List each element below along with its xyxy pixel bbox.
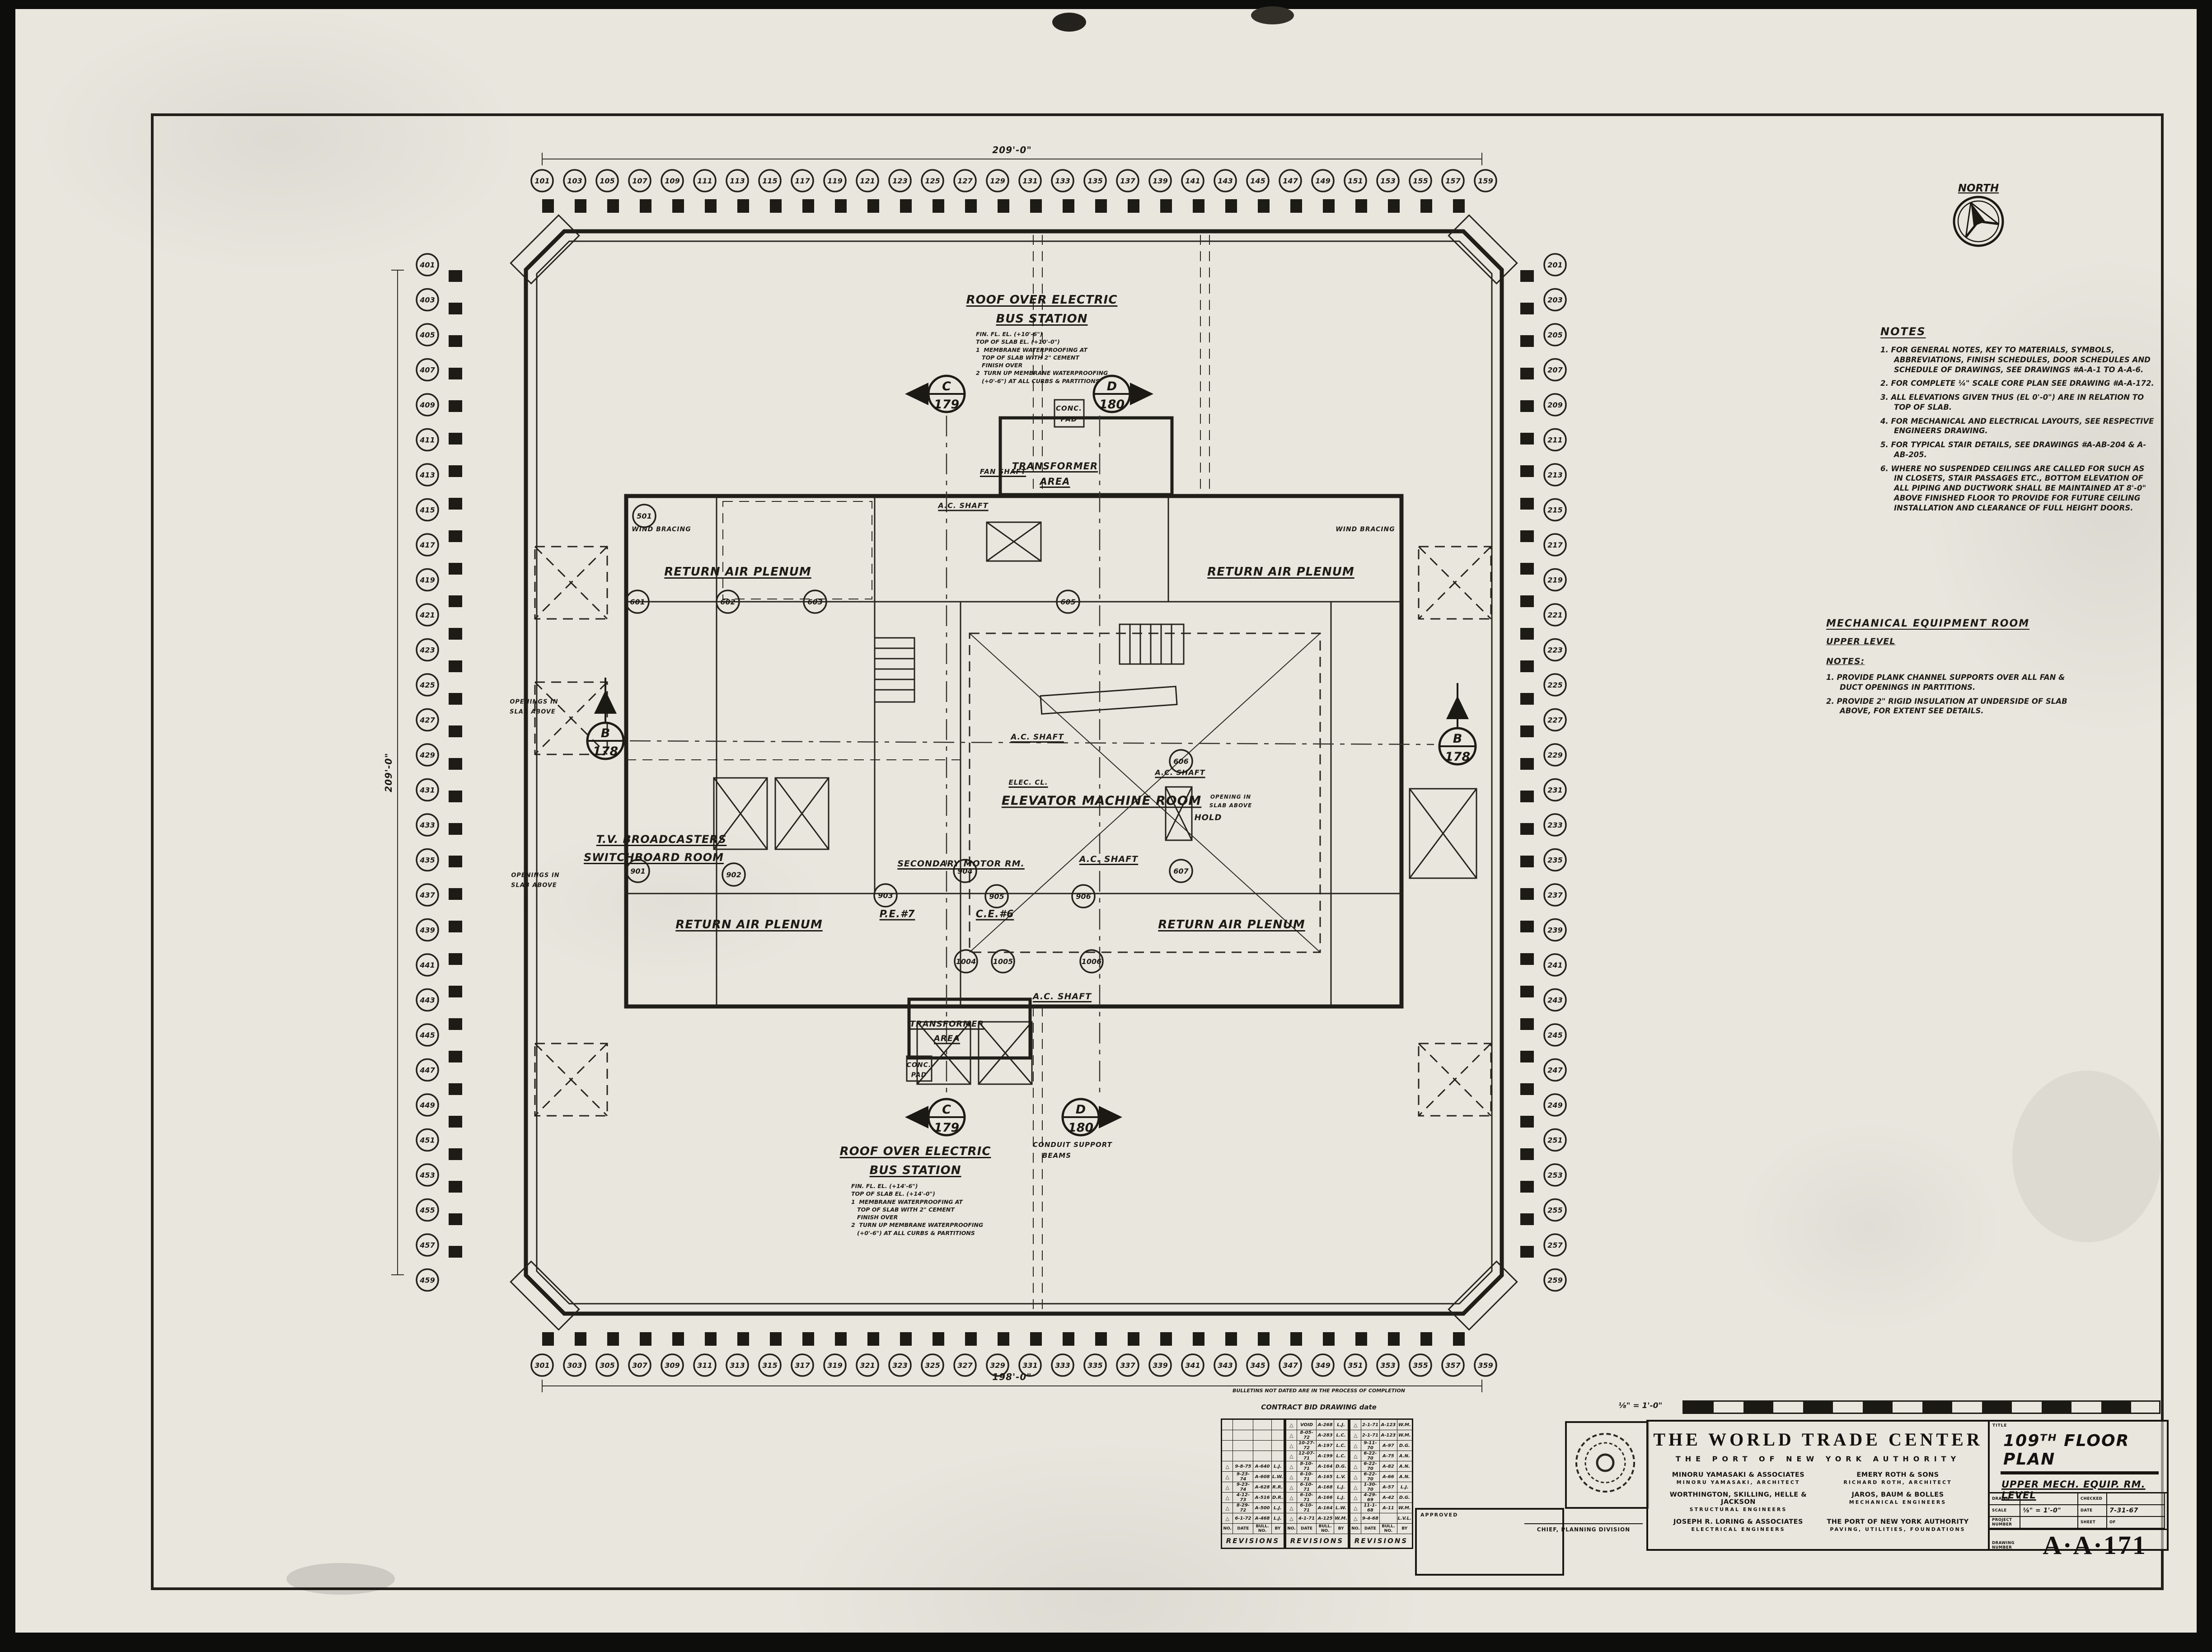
roof-notes-top: FIN. FL. EL. (+10'-6")TOP OF SLAB EL. (+… [976,331,1166,385]
svg-text:113: 113 [730,177,745,185]
svg-text:223: 223 [1547,646,1562,655]
revisions-table-3: △2-1-71A-123W.M.△2-1-71A-123W.M.△9-11-70… [1349,1418,1413,1549]
svg-text:305: 305 [600,1361,614,1370]
svg-text:257: 257 [1547,1241,1563,1250]
section-cut-lines [630,416,1434,1093]
firm-list: MINORU YAMASAKI & ASSOCIATESMINORU YAMAS… [1661,1471,1975,1532]
svg-text:105: 105 [600,177,614,185]
north-arrow-icon: NORTH [1954,183,2003,246]
svg-text:251: 251 [1547,1136,1562,1145]
svg-text:241: 241 [1547,961,1562,969]
svg-text:335: 335 [1087,1361,1102,1370]
svg-text:129: 129 [990,177,1005,185]
dimension-face-width: 209'-0" [992,145,1032,155]
svg-text:243: 243 [1547,996,1562,1005]
bulletins-note: BULLETINS NOT DATED ARE IN THE PROCESS O… [1222,1388,1416,1394]
label-roof-over-electric: ROOF OVER ELECTRIC [966,293,1118,307]
svg-text:203: 203 [1547,296,1562,304]
svg-text:101: 101 [534,177,549,185]
roof-notes-bottom: FIN. FL. EL. (+14'-6")TOP OF SLAB EL. (+… [851,1183,1041,1237]
scale-value: ⅛" = 1'-0" [2020,1505,2078,1517]
section-number: 179 [934,398,959,412]
svg-text:443: 443 [419,996,435,1005]
svg-text:145: 145 [1250,177,1265,185]
svg-text:605: 605 [1060,598,1075,606]
title-block-firms: THE WORLD TRADE CENTER THE PORT OF NEW Y… [1648,1422,1990,1549]
svg-text:343: 343 [1218,1361,1233,1370]
label-conduit-support-beams: CONDUIT SUPPORT [1033,1141,1112,1149]
drawing-number-label: DRAWING NUMBER [1990,1541,2023,1550]
revisions-table-1: △9-8-75A-640L.J.△9-23-74A-608L.W.△9-23-7… [1221,1418,1285,1549]
sheet-label: SHEET [2078,1517,2107,1529]
svg-text:449: 449 [419,1101,435,1109]
room-label-ac-shaft: A.C. SHAFT [1155,768,1205,777]
svg-text:459: 459 [419,1276,435,1285]
svg-text:123: 123 [892,177,907,185]
svg-text:231: 231 [1547,786,1562,795]
svg-text:147: 147 [1283,177,1298,185]
section-letter: D [1076,1103,1086,1117]
svg-text:457: 457 [419,1241,435,1250]
room-label-elec-cl: ELEC. CL. [1008,778,1048,786]
section-number: 180 [1068,1121,1093,1135]
contract-bid-note: CONTRACT BID DRAWING date [1222,1403,1416,1411]
north-label: NORTH [1958,183,1999,194]
svg-text:229: 229 [1547,751,1562,759]
svg-text:353: 353 [1380,1361,1395,1370]
room-label-elevator-machine-room: ELEVATOR MACHINE ROOM [1002,793,1201,808]
room-label-return-air-plenum: RETURN AIR PLENUM [664,565,811,579]
label-conduit-support-beams: BEAMS [1042,1151,1071,1160]
notes-list: 1. FOR GENERAL NOTES, KEY TO MATERIALS, … [1880,345,2156,513]
svg-text:319: 319 [827,1361,842,1370]
svg-text:213: 213 [1547,471,1562,479]
label-conc-pad: CONC. [907,1062,932,1069]
room-label-ac-shaft: A.C. SHAFT [1011,733,1064,742]
svg-text:906: 906 [1076,892,1091,901]
svg-text:407: 407 [419,366,435,374]
room-label-ac-shaft: A.C. SHAFT [938,501,988,510]
svg-text:127: 127 [957,177,973,185]
svg-text:153: 153 [1380,177,1395,185]
svg-text:311: 311 [697,1361,712,1370]
svg-text:435: 435 [419,856,435,865]
svg-text:115: 115 [762,177,777,185]
svg-text:415: 415 [419,506,435,515]
mer-subtitle: UPPER LEVEL [1826,636,2088,646]
approved-label: APPROVED [1417,1510,1562,1520]
svg-text:237: 237 [1547,891,1563,899]
room-label-transformer-area: AREA [934,1034,960,1044]
room-label-return-air-plenum: RETURN AIR PLENUM [1207,565,1354,579]
svg-text:1006: 1006 [1082,957,1102,966]
svg-text:341: 341 [1185,1361,1200,1370]
section-number: 178 [1445,750,1470,764]
svg-text:441: 441 [419,961,435,969]
svg-text:259: 259 [1547,1276,1562,1285]
stair-icons [875,624,1184,702]
svg-text:419: 419 [419,576,435,585]
dimension-face-height: 209'-0" [383,753,394,792]
svg-text:417: 417 [419,541,435,549]
svg-text:225: 225 [1547,681,1562,689]
label-openings-in-slab: OPENINGS IN [510,699,558,706]
label-roof-over-electric: ROOF OVER ELECTRIC [840,1145,991,1158]
drawing-title-line1: 109ᵀᴴ FLOOR PLAN [2003,1432,2160,1469]
project-number-label: PROJECT NUMBER [1990,1517,2020,1529]
svg-text:405: 405 [419,331,435,339]
date-value: 7-31-67 [2107,1505,2165,1517]
section-number: 178 [593,744,618,758]
svg-text:607: 607 [1173,867,1189,875]
label-hold: HOLD [1195,813,1222,823]
section-letter: C [942,1103,951,1117]
svg-text:345: 345 [1250,1361,1265,1370]
mer-notes-block: MECHANICAL EQUIPMENT ROOM UPPER LEVEL NO… [1826,618,2088,720]
graphic-scale-bar [1682,1400,2160,1414]
svg-text:227: 227 [1547,716,1563,725]
svg-text:135: 135 [1087,177,1102,185]
svg-text:309: 309 [665,1361,680,1370]
room-label-pe7: P.E.#7 [880,909,915,920]
svg-text:111: 111 [697,177,712,185]
section-number: 179 [934,1121,959,1135]
svg-text:205: 205 [1547,331,1562,339]
section-letter: B [601,726,610,740]
svg-text:235: 235 [1547,856,1562,865]
owner-title: THE PORT OF NEW YORK AUTHORITY [1648,1455,1988,1463]
svg-text:903: 903 [878,891,893,900]
label-bus-station: BUS STATION [996,312,1087,326]
svg-text:327: 327 [957,1361,973,1370]
svg-text:207: 207 [1547,366,1563,374]
svg-text:451: 451 [419,1136,435,1145]
svg-text:401: 401 [419,261,435,269]
rev-col-no: NO. [1222,1524,1233,1534]
mer-notes-list: 1. PROVIDE PLANK CHANNEL SUPPORTS OVER A… [1826,673,2088,716]
svg-text:429: 429 [419,751,435,759]
svg-text:323: 323 [892,1361,907,1370]
svg-text:337: 337 [1120,1361,1135,1370]
svg-text:333: 333 [1055,1361,1070,1370]
svg-text:209: 209 [1547,401,1562,409]
svg-text:347: 347 [1283,1361,1298,1370]
approved-box: APPROVED [1415,1508,1564,1576]
svg-text:151: 151 [1348,177,1363,185]
section-number: 180 [1099,398,1125,412]
drawing-number-zone: DRAWING NUMBER A·A·171 [1990,1530,2167,1560]
svg-text:329: 329 [990,1361,1005,1370]
section-letter: B [1453,732,1462,746]
svg-text:155: 155 [1413,177,1428,185]
stamp-box [1565,1421,1649,1509]
svg-text:107: 107 [632,177,647,185]
section-marker-c179-top: C 179 [905,376,965,412]
svg-text:303: 303 [567,1361,582,1370]
rev-col-date: DATE [1233,1524,1253,1534]
svg-text:439: 439 [419,926,435,935]
svg-text:331: 331 [1022,1361,1037,1370]
rev-col-by: BY [1271,1524,1284,1534]
svg-text:317: 317 [795,1361,810,1370]
project-number-value [2020,1517,2078,1529]
svg-text:325: 325 [925,1361,940,1370]
section-marker-c179-bottom: C 179 [905,1099,965,1135]
label-openings-in-slab: OPENINGS IN [511,872,559,879]
revisions-table-2: △VOIDA-268L.J.△8-05-72A-283L.C.△10-27-72… [1285,1418,1349,1549]
label-opening-in-slab: SLAB ABOVE [1209,802,1252,809]
svg-text:1004: 1004 [956,957,976,966]
label-openings-in-slab: SLAB ABOVE [510,709,556,716]
mer-title: MECHANICAL EQUIPMENT ROOM [1826,618,2088,629]
svg-text:901: 901 [630,867,645,875]
svg-text:447: 447 [419,1066,435,1075]
svg-text:359: 359 [1478,1361,1493,1370]
svg-text:427: 427 [419,716,435,725]
general-notes-block: NOTES 1. FOR GENERAL NOTES, KEY TO MATER… [1880,325,2156,517]
svg-text:403: 403 [419,296,435,304]
room-label-return-air-plenum: RETURN AIR PLENUM [675,918,822,931]
svg-text:902: 902 [726,870,741,879]
scale-label: SCALE [1990,1505,2020,1517]
svg-text:245: 245 [1547,1031,1562,1039]
svg-text:501: 501 [637,512,651,520]
room-label-switchboard-room: SWITCHBOARD ROOM [584,851,724,864]
svg-text:411: 411 [419,436,435,445]
room-label-return-air-plenum: RETURN AIR PLENUM [1158,918,1305,931]
svg-text:357: 357 [1445,1361,1461,1370]
label-bus-station: BUS STATION [869,1164,961,1177]
svg-text:131: 131 [1022,177,1037,185]
scanned-blueprint-sheet: { "sheet": { "north_label": "NORTH", "sc… [0,0,2212,1643]
section-marker-b178-right: B 178 [1439,683,1476,764]
svg-text:149: 149 [1315,177,1330,185]
svg-text:413: 413 [419,471,435,479]
drawing-number-value: A·A·171 [2023,1530,2167,1560]
svg-text:315: 315 [762,1361,777,1370]
svg-text:606: 606 [1173,757,1188,766]
planning-division-caption: CHIEF, PLANNING DIVISION [1524,1523,1643,1533]
scale-bar-label: ⅛" = 1'-0" [1618,1401,1662,1410]
title-field-label: TITLE [1992,1423,2007,1428]
svg-text:601: 601 [630,598,645,606]
svg-text:1005: 1005 [993,957,1013,966]
svg-text:349: 349 [1315,1361,1330,1370]
svg-text:117: 117 [795,177,810,185]
svg-text:905: 905 [989,892,1004,901]
svg-text:219: 219 [1547,576,1562,585]
label-conc-pad: CONC. [1056,404,1082,412]
svg-text:109: 109 [665,177,680,185]
svg-text:455: 455 [419,1206,435,1215]
svg-text:321: 321 [860,1361,875,1370]
section-marker-d180-bottom: D 180 [1063,1099,1122,1135]
room-label-secondary-motor-rm: SECONDARY MOTOR RM. [897,859,1025,869]
mer-notes-label: NOTES: [1826,656,2088,666]
svg-text:339: 339 [1153,1361,1167,1370]
svg-text:351: 351 [1348,1361,1363,1370]
svg-text:421: 421 [419,611,435,619]
svg-text:247: 247 [1547,1066,1563,1075]
title-block: THE WORLD TRADE CENTER THE PORT OF NEW Y… [1646,1420,2169,1551]
svg-text:157: 157 [1445,177,1461,185]
section-marker-b178-left: B 178 [587,678,623,759]
revisions-caption: REVISIONS [1222,1534,1284,1549]
paper-sheet: B 178 B 178 C 179 D 180 C 179 [15,9,2197,1633]
svg-text:307: 307 [632,1361,647,1370]
title-underline [2001,1471,2159,1474]
room-label-transformer-area: TRANSFORMER [1012,461,1098,472]
rev-col-bull: BULL. NO. [1253,1524,1271,1534]
room-label-ce6: C.E.#6 [976,909,1014,920]
notes-title: NOTES [1880,325,2156,338]
svg-text:211: 211 [1547,436,1562,445]
wind-brace-bays [535,547,1491,1116]
room-label-tv-broadcasters: T.V. BROADCASTERS [596,833,726,846]
room-label-ac-shaft: A.C. SHAFT [1033,992,1092,1001]
project-title: THE WORLD TRADE CENTER [1648,1429,1988,1450]
label-wind-bracing: WIND BRACING [1336,526,1395,533]
svg-text:141: 141 [1185,177,1200,185]
title-block-fields: TITLE 109ᵀᴴ FLOOR PLAN UPPER MECH. EQUIP… [1990,1422,2167,1549]
svg-text:233: 233 [1547,821,1562,829]
svg-text:253: 253 [1547,1171,1562,1179]
section-letter: C [942,379,951,393]
svg-text:125: 125 [925,177,940,185]
label-opening-in-slab: OPENING IN [1210,794,1251,800]
svg-text:603: 603 [807,598,822,606]
svg-text:445: 445 [419,1031,435,1039]
svg-text:201: 201 [1547,261,1562,269]
room-label-ac-shaft: A.C. SHAFT [1079,854,1138,864]
svg-text:215: 215 [1547,506,1562,515]
svg-text:249: 249 [1547,1101,1562,1109]
svg-text:602: 602 [720,598,735,606]
dimension-base: 198'-0" [992,1371,1032,1382]
svg-text:433: 433 [419,821,435,829]
svg-text:217: 217 [1547,541,1563,549]
svg-text:119: 119 [827,177,842,185]
svg-text:159: 159 [1478,177,1493,185]
svg-text:423: 423 [419,646,435,655]
label-openings-in-slab: SLAB ABOVE [511,882,557,889]
label-wind-bracing: WIND BRACING [632,526,691,533]
of-label: OF [2107,1517,2165,1529]
drawing-title-zone: TITLE 109ᵀᴴ FLOOR PLAN UPPER MECH. EQUIP… [1990,1422,2167,1493]
svg-text:133: 133 [1055,177,1070,185]
svg-text:103: 103 [567,177,582,185]
svg-text:355: 355 [1413,1361,1428,1370]
svg-text:221: 221 [1547,611,1562,619]
svg-text:255: 255 [1547,1206,1562,1215]
drawing-title-line2: UPPER MECH. EQUIP. RM. LEVEL [2001,1479,2160,1501]
svg-text:453: 453 [419,1171,435,1179]
date-label: DATE [2078,1505,2107,1517]
svg-text:143: 143 [1218,177,1233,185]
room-label-transformer-area: AREA [1040,476,1070,487]
svg-text:139: 139 [1153,177,1167,185]
label-conc-pad: PAD [1061,415,1078,423]
svg-text:121: 121 [860,177,875,185]
svg-text:431: 431 [419,786,435,795]
svg-text:239: 239 [1547,926,1562,935]
svg-text:437: 437 [419,891,435,899]
svg-text:301: 301 [534,1361,549,1370]
svg-text:137: 137 [1120,177,1135,185]
label-conc-pad: PAD [911,1072,927,1079]
svg-text:425: 425 [419,681,435,689]
room-label-transformer-area: TRANSFORMER [910,1020,984,1029]
svg-text:409: 409 [419,401,435,409]
svg-text:313: 313 [730,1361,745,1370]
